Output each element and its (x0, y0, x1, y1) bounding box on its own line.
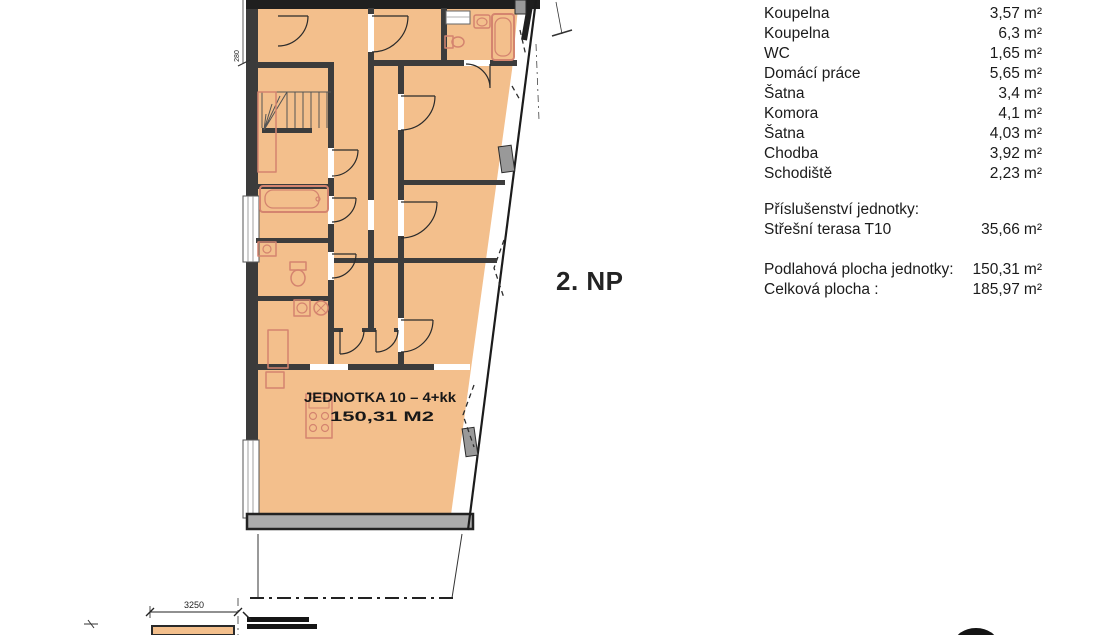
accessory-row: Střešní terasa T10 35,66m² (764, 220, 1042, 240)
room-row: Koupelna 3,57m² (764, 4, 1042, 24)
room-area: 4,03 (990, 125, 1020, 142)
room-list-panel: Koupelna 3,57m² Koupelna 6,3m² WC 1,65m²… (764, 4, 1042, 300)
room-area: 2,23 (990, 165, 1020, 182)
window-left-lower (243, 440, 259, 518)
wall-top (246, 0, 540, 9)
total-name: Podlahová plocha jednotky: (764, 260, 954, 280)
building-exterior (243, 0, 540, 530)
shaft (446, 11, 470, 24)
fragment-room-fill (152, 626, 234, 635)
dimension-top-right (536, 2, 572, 120)
total-area: 150,31 (973, 261, 1020, 278)
room-name: Koupelna (764, 24, 830, 44)
room-name: WC (764, 44, 790, 64)
room-row: Domácí práce 5,65m² (764, 64, 1042, 84)
room-row: WC 1,65m² (764, 44, 1042, 64)
room-row: Schodiště 2,23m² (764, 164, 1042, 184)
room-name: Domácí práce (764, 64, 860, 84)
area-unit: m² (1024, 25, 1042, 42)
total-row: Podlahová plocha jednotky: 150,31m² (764, 260, 1042, 280)
window-left-upper (243, 196, 259, 262)
room-name: Koupelna (764, 4, 830, 24)
room-row: Koupelna 6,3m² (764, 24, 1042, 44)
room-area: 1,65 (990, 45, 1020, 62)
room-area: 3,57 (990, 5, 1020, 22)
room-area: 6,3 (998, 25, 1020, 42)
fragment-tick-far-left (84, 620, 98, 628)
dimension-bottom-label: 3250 (184, 600, 204, 610)
unit-title-text: JEDNOTKA 10 – 4+kk (304, 389, 456, 405)
room-area: 3,92 (990, 145, 1020, 162)
room-name: Komora (764, 104, 818, 124)
area-unit: m² (1024, 221, 1042, 238)
unit-area-text: 150,31 M2 (330, 408, 434, 424)
compass-circle-fragment (954, 628, 998, 635)
roof-outline (250, 534, 462, 598)
dimension-left-label: 280 (234, 50, 241, 62)
room-name: Schodiště (764, 164, 832, 184)
area-unit: m² (1024, 45, 1042, 62)
room-row: Šatna 3,4m² (764, 84, 1042, 104)
total-name: Celková plocha : (764, 280, 879, 300)
accessory-area: 35,66 (981, 221, 1020, 238)
area-unit: m² (1024, 105, 1042, 122)
floor-label: 2. NP (556, 266, 624, 297)
area-unit: m² (1024, 261, 1042, 278)
wall-bottom (247, 514, 473, 529)
area-unit: m² (1024, 281, 1042, 298)
fragment-bottom-left: 3250 (84, 598, 317, 635)
page: 280 JEDNOTKA 10 – 4+kk 150,31 M2 3250 (0, 0, 1111, 635)
total-row: Celková plocha : 185,97m² (764, 280, 1042, 300)
room-area: 5,65 (990, 65, 1020, 82)
area-unit: m² (1024, 145, 1042, 162)
room-area: 4,1 (998, 105, 1020, 122)
room-area: 3,4 (998, 85, 1020, 102)
area-unit: m² (1024, 165, 1042, 182)
room-name: Šatna (764, 124, 805, 144)
area-unit: m² (1024, 65, 1042, 82)
total-area: 185,97 (973, 281, 1020, 298)
room-name: Šatna (764, 84, 805, 104)
area-unit: m² (1024, 125, 1042, 142)
room-row: Šatna 4,03m² (764, 124, 1042, 144)
room-row: Komora 4,1m² (764, 104, 1042, 124)
area-unit: m² (1024, 5, 1042, 22)
area-unit: m² (1024, 85, 1042, 102)
room-name: Chodba (764, 144, 818, 164)
accessories-title: Příslušenství jednotky: (764, 200, 1042, 220)
room-row: Chodba 3,92m² (764, 144, 1042, 164)
accessory-name: Střešní terasa T10 (764, 220, 891, 240)
